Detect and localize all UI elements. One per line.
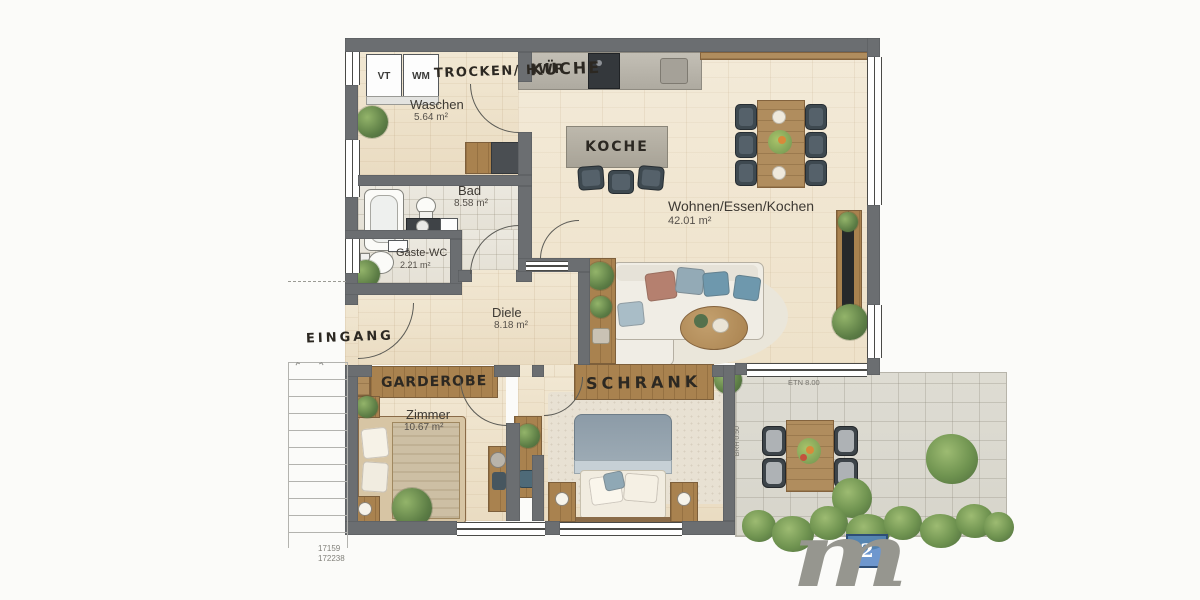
window-lintel	[700, 52, 869, 60]
terrace-chair	[762, 426, 786, 456]
bar-stool	[608, 170, 634, 194]
terrace-note: ETN 8.00	[788, 378, 820, 387]
wall-bottom	[545, 521, 560, 535]
wall-bottom	[345, 521, 457, 535]
bar-stool	[637, 165, 665, 191]
window-left-wc	[345, 237, 360, 273]
sideboard-plant	[838, 212, 858, 232]
wall-zimmer-top	[494, 365, 520, 377]
wall-right	[867, 358, 880, 375]
wall-top	[345, 38, 880, 52]
dining-chair	[805, 132, 827, 158]
floor-plant-living	[832, 304, 868, 340]
wm-label: WM	[412, 71, 430, 82]
exterior-stairs	[288, 362, 348, 548]
hedge-bush	[742, 510, 776, 542]
coffee-table-plant	[694, 314, 708, 328]
wall-diele-living-v	[578, 272, 590, 365]
shelf-plant	[586, 262, 614, 290]
sofa-pillow-blue-right	[732, 274, 761, 301]
coffee-table-bowl	[712, 318, 729, 333]
zimmer-plant-top	[356, 396, 378, 418]
dining-chair	[735, 132, 757, 158]
bed-blanket	[574, 414, 672, 464]
plan-ref-1: 17159	[318, 544, 340, 553]
zimmer-pillow	[361, 427, 390, 460]
wall-bottom	[682, 521, 735, 535]
wall-schlaf-left-stub	[532, 365, 544, 377]
nightstand-lamp	[555, 492, 569, 506]
zimmer-desk-item	[492, 472, 506, 490]
tv-screen	[842, 226, 854, 316]
pane-diele-living	[526, 261, 568, 271]
vt-label: VT	[378, 71, 391, 82]
sofa-pillow-terracotta	[644, 270, 678, 302]
wall-hwr-bad	[358, 175, 532, 186]
bar-stool	[577, 165, 605, 191]
wall-terrace-stub	[735, 363, 747, 375]
window-left-waschen	[345, 52, 360, 85]
waschen-label: Waschen	[410, 97, 464, 112]
table-fruit	[778, 136, 786, 144]
plan-ref-2: 172238	[318, 554, 345, 563]
bad-label: Bad	[458, 183, 481, 198]
wall-wc-top	[345, 230, 462, 239]
wall-hwr-kueche	[518, 132, 532, 175]
gaeste-wc-label: Gäste-WC	[396, 247, 447, 259]
logo-m: m	[792, 522, 908, 588]
terrace-chair	[834, 426, 858, 456]
dining-chair	[735, 160, 757, 186]
eingang-label: EINGANG	[306, 328, 394, 346]
zimmer-lamp	[358, 502, 372, 516]
table-plate	[772, 110, 786, 124]
kitchen-island: KOCHE	[566, 126, 668, 168]
wall-left	[345, 85, 358, 140]
shelf-plant	[590, 296, 612, 318]
zimmer-pillow	[361, 461, 389, 493]
wohnen-label: Wohnen/Essen/Kochen	[668, 198, 814, 214]
dining-chair	[805, 160, 827, 186]
diele-label: Diele	[492, 305, 522, 320]
kitchen-sink	[660, 58, 688, 84]
terrace-chair	[762, 458, 786, 488]
window-left-bad	[345, 140, 360, 197]
nightstand-lamp	[677, 492, 691, 506]
wall-zimmer-right	[506, 423, 520, 521]
dining-chair	[805, 104, 827, 130]
wohnen-area: 42.01 m²	[668, 215, 711, 227]
diele-area: 8.18 m²	[494, 320, 528, 331]
wall-schlaf-left	[532, 455, 544, 521]
schrank-wardrobe: SCHRANK	[574, 364, 714, 400]
hwr-cabinet-dark	[491, 142, 519, 174]
sill-note: BRH 0.50	[734, 426, 741, 456]
hedge-bush	[984, 512, 1014, 542]
wall-wc-bottom	[345, 283, 462, 295]
appliance-vt: VT	[366, 54, 402, 98]
terrace-fruit	[806, 446, 814, 454]
terrace-fruit	[800, 454, 807, 461]
window-bottom-schlafzimmer	[560, 522, 682, 536]
sofa-pillow-blue	[702, 271, 730, 297]
zimmer-desk-chair	[490, 452, 506, 468]
bad-area: 8.58 m²	[454, 198, 488, 209]
hwr-plant	[356, 106, 388, 138]
sofa-pillow-chaise	[617, 301, 645, 328]
window-bottom-zimmer	[457, 522, 545, 536]
wall-right	[867, 38, 880, 57]
hwr-cabinet-wood	[465, 142, 493, 174]
floor-plan-canvas: KOCHE VT WM	[0, 0, 1200, 600]
table-plate	[772, 166, 786, 180]
dining-chair	[735, 104, 757, 130]
waschen-area: 5.64 m²	[414, 112, 448, 123]
window-right-upper	[867, 57, 882, 205]
sofa-pillow-gray-blue	[675, 267, 706, 296]
kueche-label: KÜCHE	[530, 58, 602, 79]
wall-right	[867, 205, 880, 305]
terrace-sliding-door	[747, 363, 867, 377]
bed-pillow	[623, 473, 659, 504]
gaeste-wc-area: 2.21 m²	[400, 260, 431, 270]
schrank-label: SCHRANK	[586, 371, 701, 392]
property-dashed-line	[288, 281, 346, 282]
terrace-bush-right	[926, 434, 978, 484]
window-right-lower	[867, 305, 882, 358]
koche-island-label: KOCHE	[585, 139, 649, 155]
wall-zimmer-top	[345, 365, 372, 377]
zimmer-area: 10.67 m²	[404, 422, 443, 433]
zimmer-label: Zimmer	[406, 407, 450, 422]
shelf-pot	[592, 328, 610, 344]
